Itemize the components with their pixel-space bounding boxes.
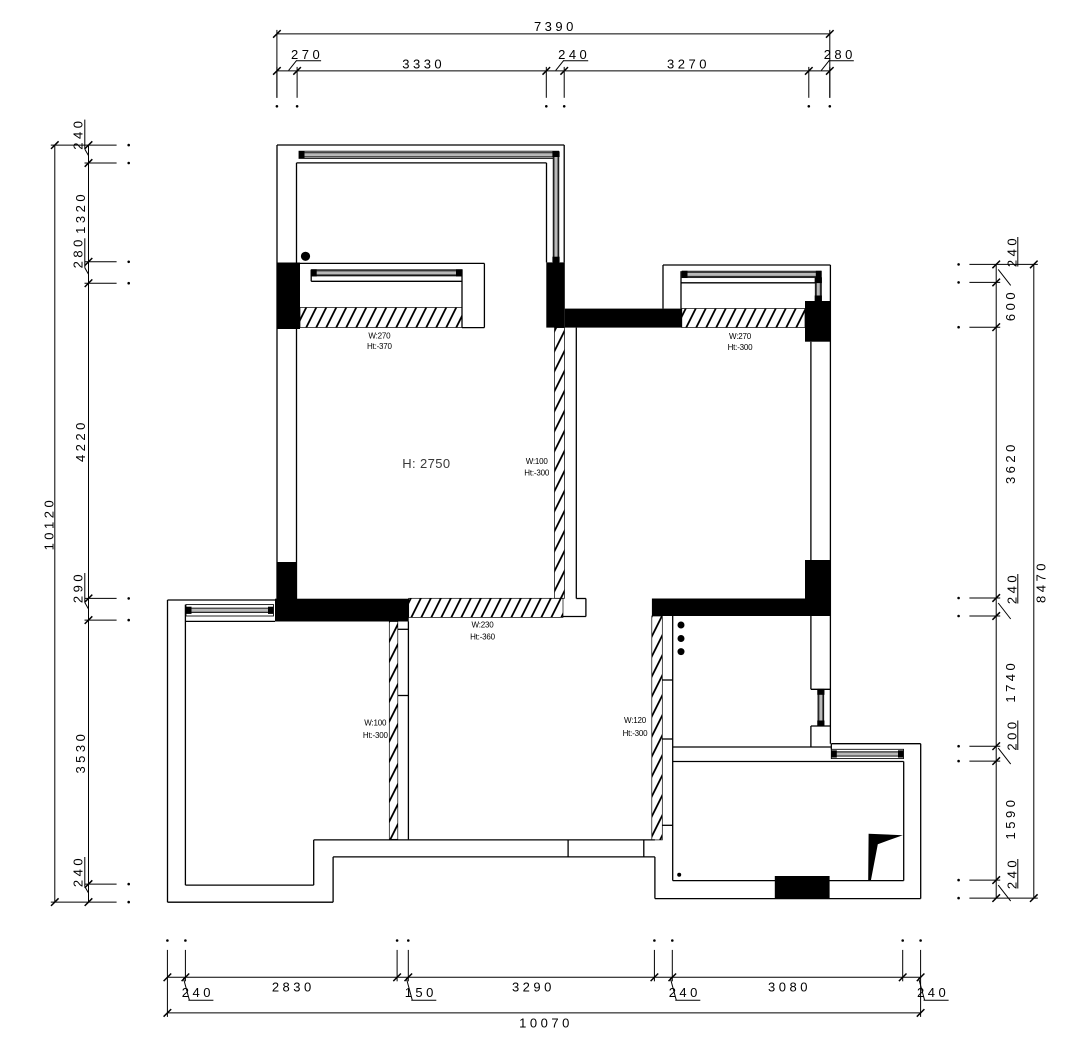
svg-text:290: 290	[71, 571, 86, 603]
svg-text:240: 240	[182, 985, 214, 1000]
svg-text:Ht:-360: Ht:-360	[470, 632, 496, 641]
svg-text:4220: 4220	[73, 419, 88, 462]
svg-text:10070: 10070	[519, 1016, 573, 1031]
svg-text:1590: 1590	[1003, 797, 1018, 840]
svg-text:280: 280	[824, 47, 856, 62]
svg-text:600: 600	[1003, 289, 1018, 321]
svg-text:3530: 3530	[73, 731, 88, 774]
svg-text:W:100: W:100	[364, 718, 387, 727]
svg-text:Ht:-300: Ht:-300	[728, 343, 754, 352]
svg-text:7390: 7390	[534, 19, 577, 34]
svg-text:240: 240	[558, 47, 590, 62]
svg-text:Ht:-370: Ht:-370	[367, 342, 393, 351]
svg-text:2830: 2830	[272, 980, 315, 995]
svg-text:3290: 3290	[512, 980, 555, 995]
svg-text:W:100: W:100	[526, 457, 549, 466]
svg-text:1740: 1740	[1003, 660, 1018, 703]
svg-text:240: 240	[71, 117, 86, 149]
svg-text:150: 150	[405, 985, 437, 1000]
svg-text:200: 200	[1005, 718, 1020, 750]
svg-text:Ht:-300: Ht:-300	[524, 469, 550, 478]
svg-text:Ht:-300: Ht:-300	[623, 729, 649, 738]
svg-text:240: 240	[1005, 572, 1020, 604]
svg-text:W:120: W:120	[624, 716, 647, 725]
svg-text:W:270: W:270	[729, 332, 752, 341]
svg-text:W:230: W:230	[472, 620, 495, 629]
svg-text:3270: 3270	[667, 56, 710, 71]
svg-text:240: 240	[1005, 857, 1020, 889]
svg-text:270: 270	[291, 47, 323, 62]
svg-text:H: 2750: H: 2750	[402, 456, 450, 471]
svg-text:240: 240	[71, 855, 86, 887]
svg-text:8470: 8470	[1034, 560, 1049, 603]
svg-text:W:270: W:270	[368, 332, 391, 341]
svg-text:3080: 3080	[768, 980, 811, 995]
svg-text:3330: 3330	[402, 56, 445, 71]
svg-text:Ht:-300: Ht:-300	[363, 731, 389, 740]
svg-text:240: 240	[669, 985, 701, 1000]
svg-text:280: 280	[71, 236, 86, 268]
svg-text:240: 240	[1005, 235, 1020, 267]
svg-text:10120: 10120	[42, 497, 57, 551]
svg-text:240: 240	[917, 985, 949, 1000]
svg-text:1320: 1320	[73, 191, 88, 234]
svg-text:3620: 3620	[1003, 441, 1018, 484]
